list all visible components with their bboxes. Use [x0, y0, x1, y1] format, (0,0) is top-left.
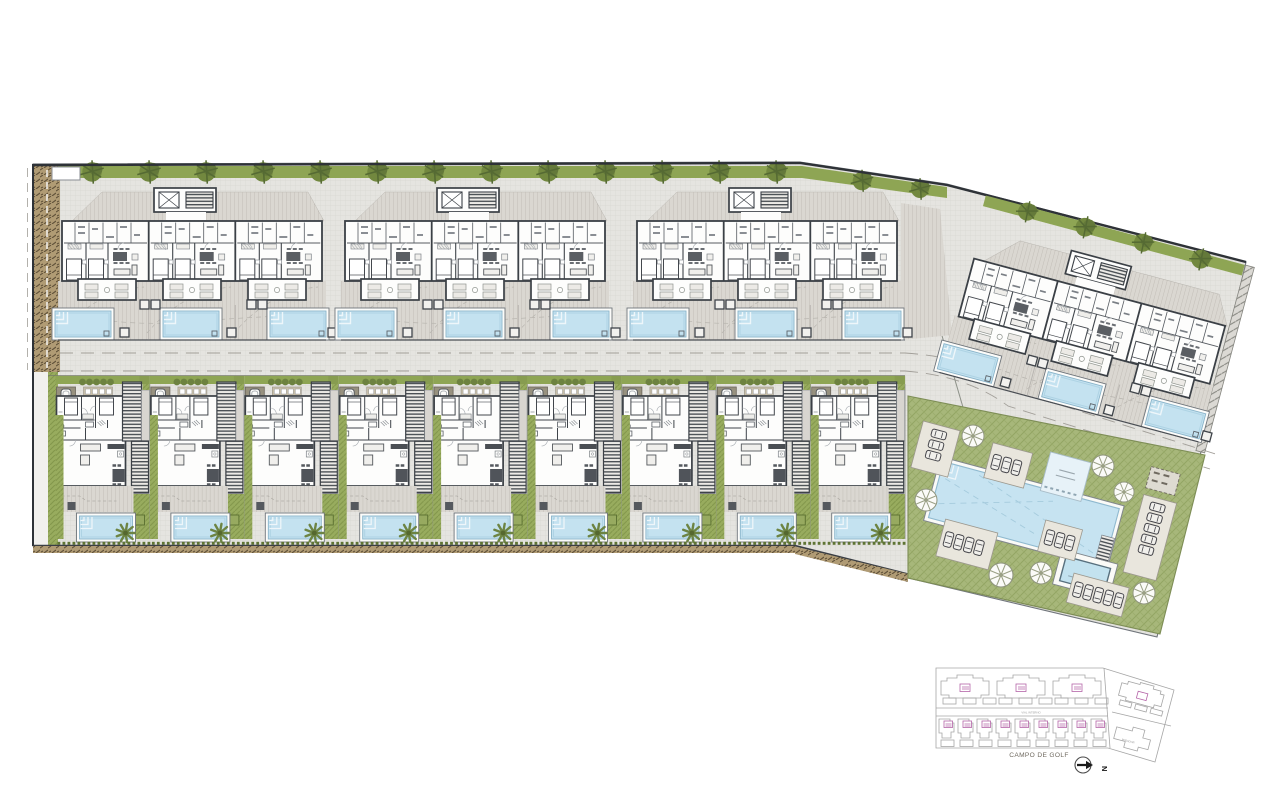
svg-text:VIAL INTERNO: VIAL INTERNO [1021, 711, 1041, 715]
svg-text:N: N [1100, 766, 1109, 771]
svg-text:CAMPO DE GOLF: CAMPO DE GOLF [1009, 752, 1069, 759]
